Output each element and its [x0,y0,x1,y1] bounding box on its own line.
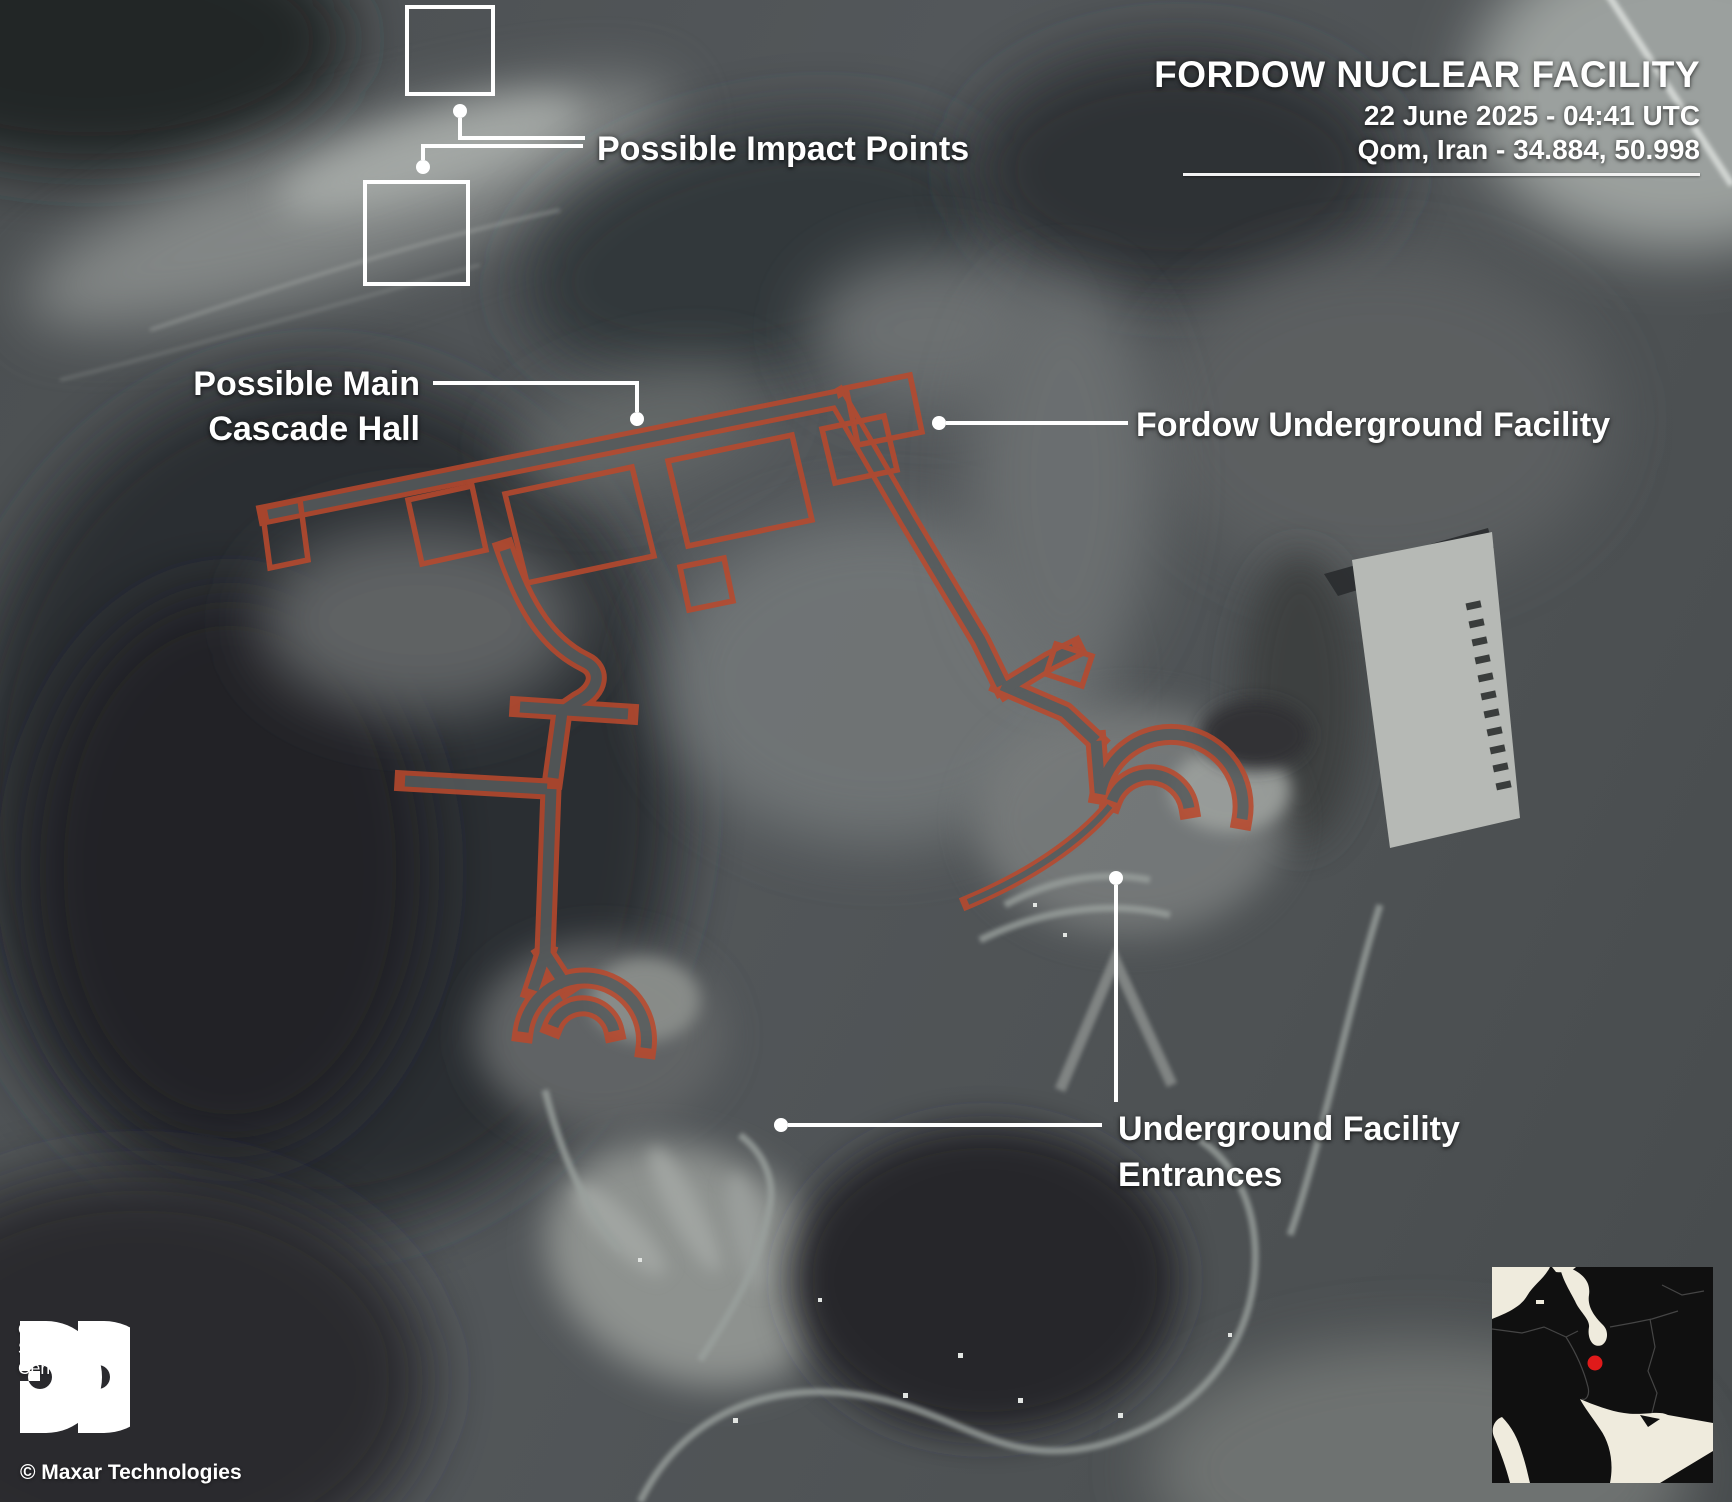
facility-entrances-label-line1: Underground Facility [1118,1106,1460,1152]
capture-location: Qom, Iran - 34.884, 50.998 [1154,135,1700,166]
open-source-centre-logo-icon [18,1320,130,1434]
impact-callout-line-south [423,146,583,160]
cascade-callout-line [433,383,637,412]
credits-block: Open Source Centre [18,1320,73,1380]
cascade-hall-label-line2: Cascade Hall [193,407,420,452]
title-block: FORDOW NUCLEAR FACILITY 22 June 2025 - 0… [1154,56,1700,165]
facility-entrances-label: Underground Facility Entrances [1118,1106,1460,1198]
impact-points-label: Possible Impact Points [597,127,969,172]
facility-entrances-label-line2: Entrances [1118,1152,1460,1198]
callout-anchor-dots [416,104,1123,1132]
impact-point-box-north [407,7,493,94]
title-divider-line [1183,173,1700,176]
underground-facility-label: Fordow Underground Facility [1136,403,1610,448]
annotated-satellite-image: FORDOW NUCLEAR FACILITY 22 June 2025 - 0… [0,0,1732,1502]
red-location-dot [1588,1356,1603,1371]
cascade-hall-label-line1: Possible Main [193,362,420,407]
impact-callout-line-north [460,118,585,138]
page-title: FORDOW NUCLEAR FACILITY [1154,56,1700,95]
iran-region-inset-map [1492,1267,1713,1483]
cascade-hall-label: Possible Main Cascade Hall [193,362,420,452]
copyright-credit: © Maxar Technologies [20,1461,242,1485]
annotation-lines [0,0,1732,1502]
impact-point-box-south [365,182,468,284]
capture-datetime: 22 June 2025 - 04:41 UTC [1154,101,1700,132]
